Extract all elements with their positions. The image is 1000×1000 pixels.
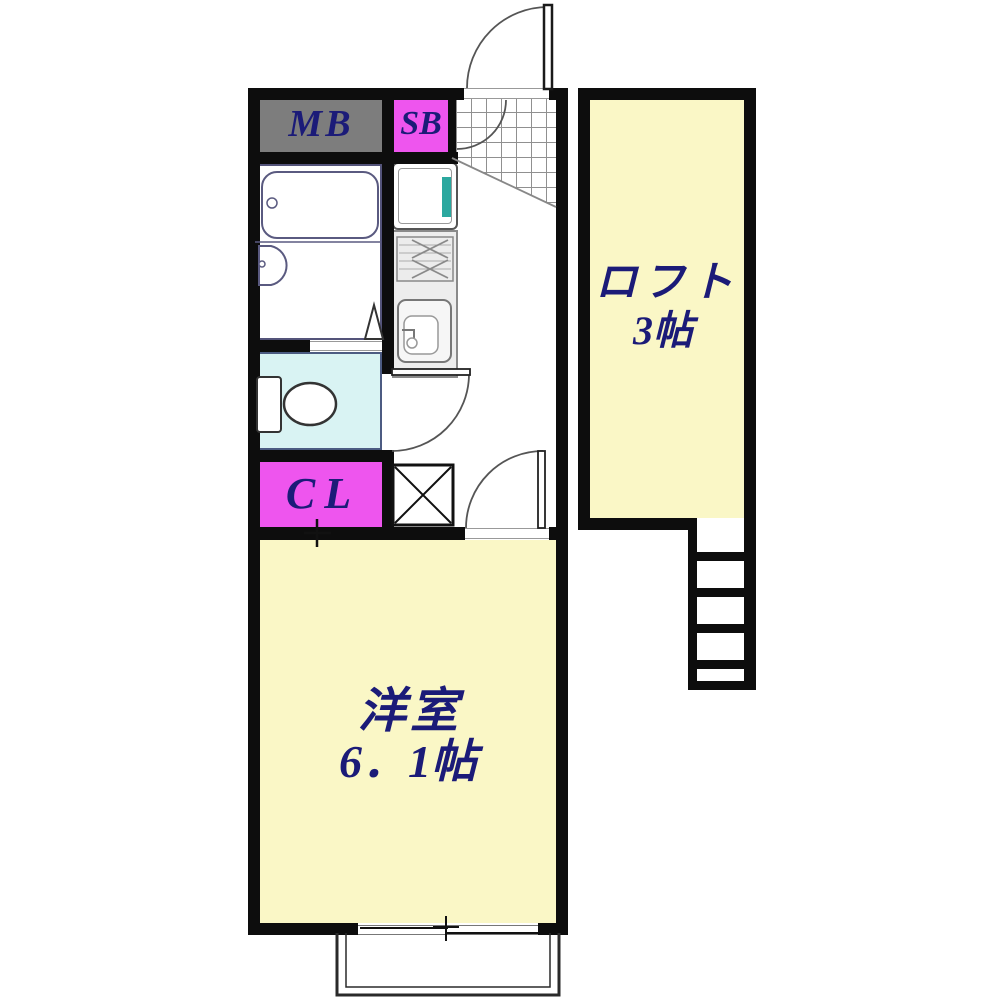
wall-bottom-left (248, 923, 358, 935)
wall-bath-toilet (248, 340, 310, 352)
bathroom-door-opening (310, 341, 382, 351)
loft-area-label: 3帖 (633, 311, 693, 351)
kitchen-counter (392, 230, 458, 378)
floor-plan: MB SB CL ロフト 3帖 洋室 6．1帖 (0, 0, 1000, 1000)
wall-bottom-right (538, 923, 568, 935)
balcony (337, 933, 559, 995)
closet-label: CL (286, 472, 360, 516)
wall-left (248, 88, 260, 935)
wall-under-mb-sb (248, 152, 458, 164)
loft-wall-left (578, 88, 590, 530)
mainroom-door-sill (465, 528, 549, 539)
wall-right (556, 88, 568, 935)
western-room-area-label: 6．1帖 (339, 739, 477, 785)
genkan-tile-floor (456, 97, 556, 209)
toilet-door (392, 369, 470, 451)
toilet-room (252, 352, 382, 450)
wall-mainroom-top-left (248, 527, 465, 540)
refrigerator-teal-strip (442, 177, 451, 217)
mainroom-door (466, 451, 545, 528)
washer-space-box (393, 465, 453, 525)
window-opening (358, 925, 538, 935)
ladder-rung-2 (697, 588, 744, 597)
ladder-left-rail (688, 518, 697, 690)
ladder-bottom-rung (688, 681, 756, 690)
meter-box-label: MB (288, 105, 353, 143)
wall-sb-right (448, 97, 456, 155)
wall-top-left (248, 88, 464, 100)
bathroom (253, 164, 382, 340)
loft-wall-bottom (578, 518, 697, 530)
refrigerator-space (392, 162, 458, 230)
entrance-threshold (464, 88, 549, 99)
loft-name-label: ロフト (595, 262, 739, 304)
wall-mid-vertical-upper (382, 100, 394, 374)
ladder-rung-4 (697, 660, 744, 669)
ladder-rung-1 (697, 552, 744, 561)
shoe-box-label: SB (400, 107, 442, 141)
loft-wall-right (744, 88, 756, 690)
wall-toilet-closet (248, 450, 394, 462)
loft-wall-top (578, 88, 756, 100)
ladder-rung-3 (697, 624, 744, 633)
western-room-name-label: 洋室 (358, 688, 462, 736)
wall-mainroom-top-right (549, 527, 568, 540)
